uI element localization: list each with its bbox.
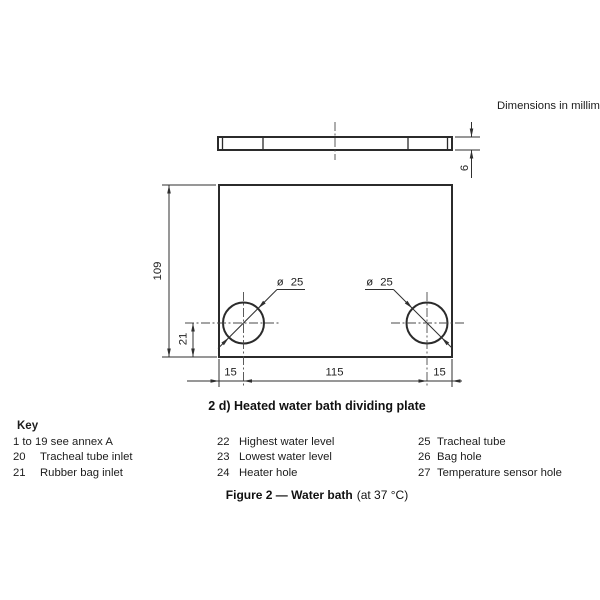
key-item-number: 27	[418, 466, 437, 481]
figure-caption: Figure 2 — Water bath(at 37 °C)	[17, 488, 600, 502]
key-item-label: Temperature sensor hole	[437, 466, 562, 481]
dim-label-right-hole-diameter: ø 25	[366, 277, 393, 289]
dim-label-left-hole-diameter: ø 25	[277, 277, 304, 289]
dim-label-plate-height: 109	[152, 262, 164, 281]
dim-label-hole-offset: 21	[178, 333, 190, 346]
key-item: 23 Lowest water level	[217, 450, 334, 465]
page: { "page": { "units_note": "Dimensions in…	[0, 0, 600, 600]
key-column-2: 22 Highest water level 23 Lowest water l…	[217, 435, 334, 481]
key-item-number: 21	[13, 466, 40, 481]
side-view	[218, 122, 452, 160]
technical-drawing: 6 109 21 15 115 15	[0, 0, 600, 600]
dim-plate-thickness: 6	[455, 122, 480, 178]
key-item: 24 Heater hole	[217, 466, 334, 481]
key-item-label: Tracheal tube inlet	[40, 450, 133, 465]
dim-label-plate-thickness: 6	[459, 165, 471, 171]
key-item-number: 23	[217, 450, 239, 465]
key-item-number: 26	[418, 450, 437, 465]
dim-bottom-chain: 15 115 15	[187, 359, 462, 387]
key-item: 25 Tracheal tube	[418, 435, 562, 450]
key-item-number: 25	[418, 435, 437, 450]
key-item-label: Lowest water level	[239, 450, 332, 465]
key-item: 22 Highest water level	[217, 435, 334, 450]
key-item: 26 Bag hole	[418, 450, 562, 465]
dim-label-left-margin: 15	[224, 367, 237, 379]
figure-caption-title: Figure 2 — Water bath	[226, 488, 353, 502]
dim-hole-center-from-bottom: 21	[178, 323, 195, 357]
key-item-label: 1 to 19 see annex A	[13, 435, 113, 450]
key-item-label: Heater hole	[239, 466, 297, 481]
key-item: 1 to 19 see annex A	[13, 435, 133, 450]
key-item-label: Highest water level	[239, 435, 334, 450]
key-item-number: 20	[13, 450, 40, 465]
dim-label-hole-spacing: 115	[325, 367, 343, 379]
figure-caption-condition: (at 37 °C)	[357, 488, 408, 502]
key-item-label: Bag hole	[437, 450, 482, 465]
dim-plate-height: 109	[152, 185, 217, 357]
key-item: 21 Rubber bag inlet	[13, 466, 133, 481]
key-item: 20 Tracheal tube inlet	[13, 450, 133, 465]
key-item-label: Rubber bag inlet	[40, 466, 123, 481]
key-item-number: 22	[217, 435, 239, 450]
key-title: Key	[17, 420, 38, 432]
key-item-number: 24	[217, 466, 239, 481]
key-item-label: Tracheal tube	[437, 435, 506, 450]
dim-label-right-margin: 15	[433, 367, 446, 379]
key-column-3: 25 Tracheal tube 26 Bag hole 27 Temperat…	[418, 435, 562, 481]
key-item: 27 Temperature sensor hole	[418, 466, 562, 481]
drawing-caption: 2 d) Heated water bath dividing plate	[17, 399, 600, 413]
front-view	[185, 185, 464, 387]
key-column-1: 1 to 19 see annex A 20 Tracheal tube inl…	[13, 435, 133, 481]
plate-outline	[219, 185, 452, 357]
